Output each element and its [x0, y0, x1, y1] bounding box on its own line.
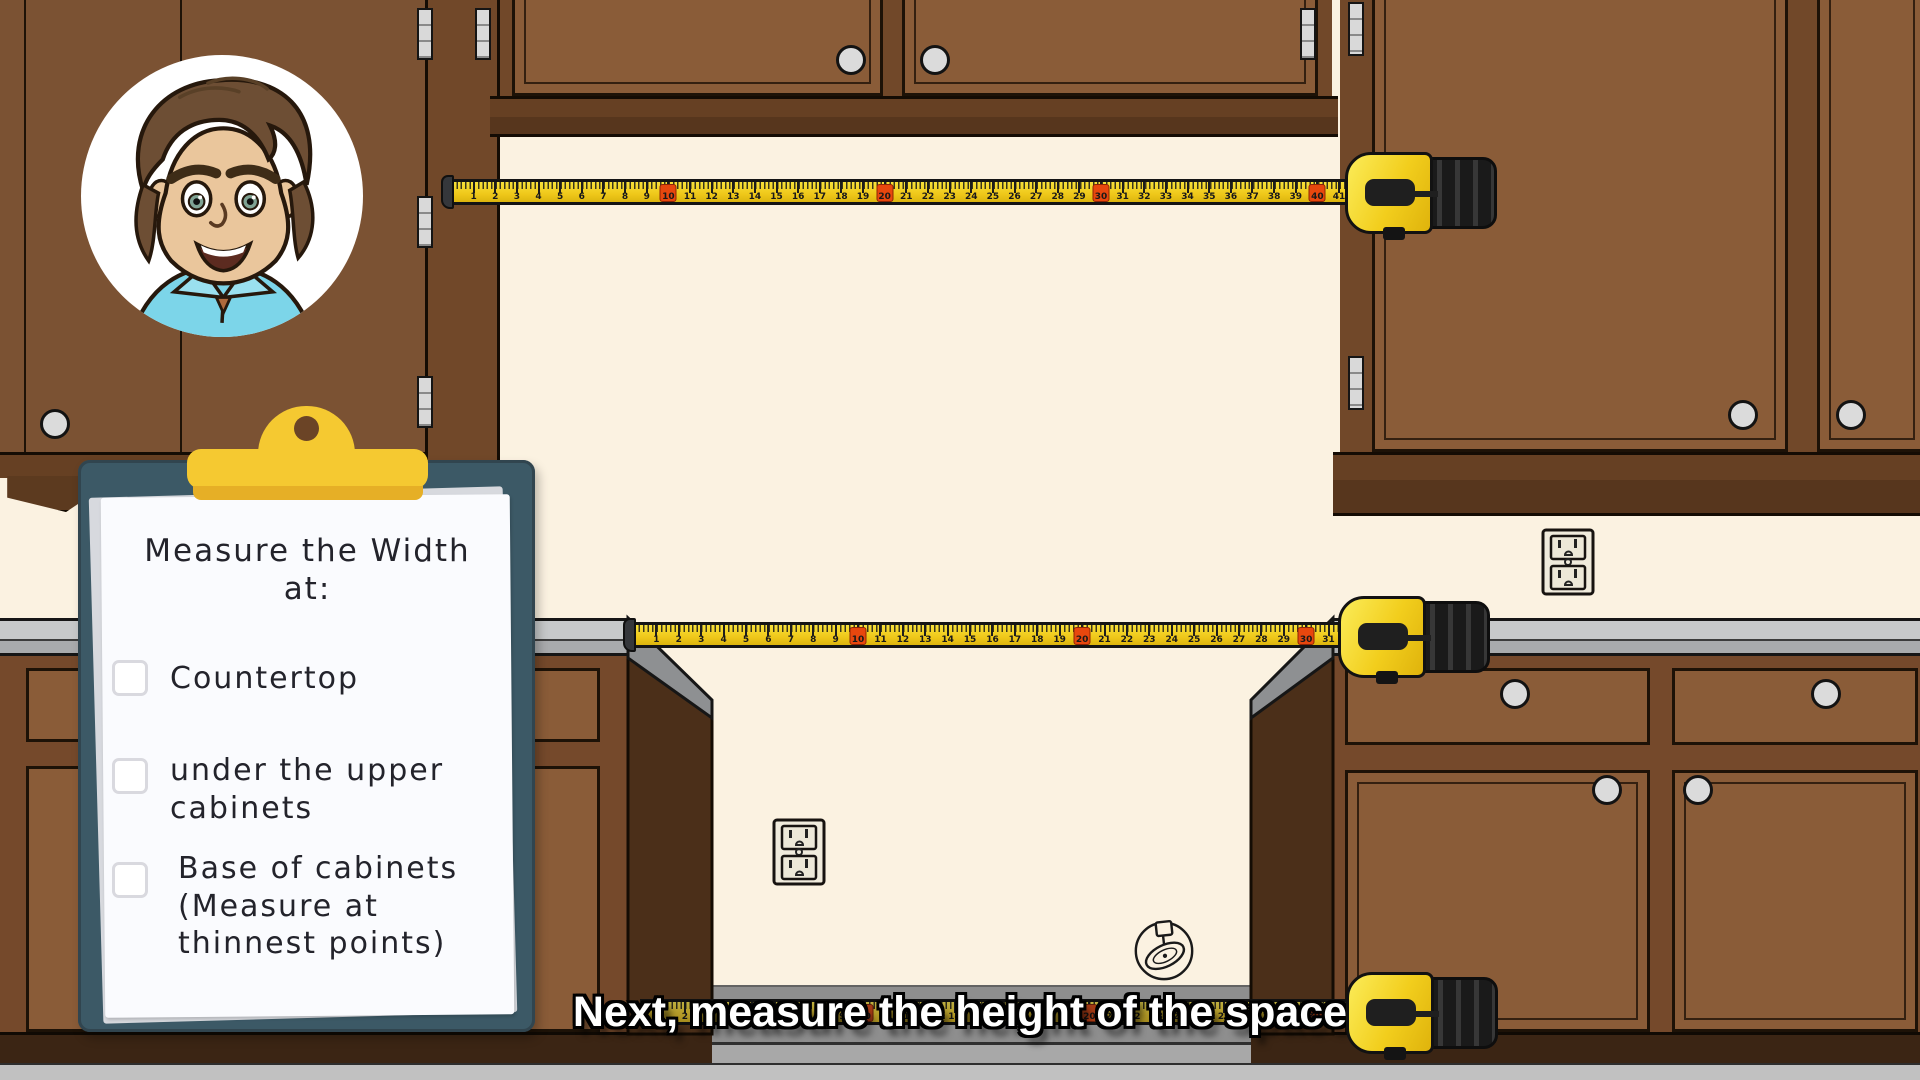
tape-hook	[623, 618, 636, 652]
tape-number: 7	[788, 635, 794, 645]
tape-number: 11	[684, 192, 697, 202]
tape-number: 4	[535, 192, 541, 202]
kitchen-scene: 1234567891011121314151617181920212223242…	[0, 0, 1920, 1080]
tape-number: 36	[1225, 192, 1238, 202]
tape-number: 31	[1116, 192, 1129, 202]
tape-number: 13	[727, 192, 740, 202]
checklist-title: Measure the Width at:	[103, 532, 512, 608]
tape-body-pin	[1405, 635, 1431, 641]
tape-number: 23	[943, 192, 956, 202]
tape-number: 26	[1210, 635, 1223, 645]
tape-body-tab	[1384, 1047, 1406, 1060]
tape-body-tab	[1376, 671, 1398, 684]
tape-number: 18	[1031, 635, 1044, 645]
tape-body-clip	[1366, 999, 1416, 1026]
tape-number: 3	[514, 192, 520, 202]
tape-number: 12	[705, 192, 718, 202]
tape-number: 27	[1030, 192, 1043, 202]
tape-measure-body-countertop	[1338, 596, 1490, 678]
tape-number: 1	[653, 635, 659, 645]
tape-number: 38	[1268, 192, 1281, 202]
tape-number: 4	[720, 635, 726, 645]
clipboard-clip-shadow	[193, 486, 423, 500]
tape-number: 8	[810, 635, 816, 645]
tape-number: 30	[1300, 635, 1313, 645]
clipboard-clip	[187, 449, 428, 489]
tape-number: 14	[749, 192, 762, 202]
tape-number: 5	[743, 635, 749, 645]
tape-body-tab	[1383, 227, 1405, 240]
tape-number: 20	[878, 192, 891, 202]
tape-number: 20	[1076, 635, 1089, 645]
tape-number: 9	[833, 635, 839, 645]
tape-number: 24	[1165, 635, 1178, 645]
tape-number: 2	[676, 635, 682, 645]
tape-number: 14	[941, 635, 954, 645]
tape-number: 33	[1160, 192, 1173, 202]
tape-measure-blade-countertop: 1234567891011121314151617181920212223242…	[634, 622, 1342, 648]
tape-number: 25	[1188, 635, 1201, 645]
tape-number: 5	[557, 192, 563, 202]
tape-number: 17	[814, 192, 827, 202]
tape-number: 15	[770, 192, 783, 202]
checklist-item-label: under the upper cabinets	[170, 752, 444, 827]
checkbox-countertop[interactable]	[112, 660, 148, 696]
tape-number: 13	[919, 635, 932, 645]
checklist-item-label: Countertop	[170, 660, 359, 698]
tape-number: 7	[600, 192, 606, 202]
tape-number: 17	[1009, 635, 1022, 645]
tape-body-clip	[1358, 623, 1408, 650]
tape-body-pin	[1413, 1011, 1439, 1017]
checkbox-under-upper-cabinets[interactable]	[112, 758, 148, 794]
tape-number: 3	[698, 635, 704, 645]
checklist-item-label: Base of cabinets (Measure at thinnest po…	[178, 850, 458, 963]
tape-number: 30	[1095, 192, 1108, 202]
tape-number: 22	[1121, 635, 1134, 645]
tape-number: 19	[1053, 635, 1066, 645]
tape-measure-body-bottom	[1346, 972, 1498, 1054]
tape-number: 22	[922, 192, 935, 202]
tape-number: 26	[1008, 192, 1021, 202]
tape-number: 16	[986, 635, 999, 645]
tape-number: 21	[900, 192, 913, 202]
tape-number: 10	[662, 192, 675, 202]
tape-number: 21	[1098, 635, 1111, 645]
tape-number: 29	[1073, 192, 1086, 202]
tape-number: 23	[1143, 635, 1156, 645]
tape-measure-doodle-icon	[1130, 915, 1198, 983]
tape-number: 6	[579, 192, 585, 202]
tape-number: 24	[965, 192, 978, 202]
tape-number: 16	[792, 192, 805, 202]
tape-hook	[441, 175, 454, 209]
tape-number: 2	[492, 192, 498, 202]
tape-number: 34	[1181, 192, 1194, 202]
clipboard-clip-hole	[294, 416, 319, 441]
tape-number: 37	[1246, 192, 1259, 202]
tape-number: 31	[1322, 635, 1335, 645]
tape-measure-blade-top: 1234567891011121314151617181920212223242…	[452, 179, 1352, 205]
tape-number: 40	[1311, 192, 1324, 202]
subtitle-caption: Next, measure the height of the space	[573, 988, 1347, 1037]
tape-number: 6	[765, 635, 771, 645]
tape-number: 11	[874, 635, 887, 645]
tape-body-pin	[1412, 191, 1438, 197]
tape-number: 25	[987, 192, 1000, 202]
tape-number: 28	[1052, 192, 1065, 202]
tape-body-clip	[1365, 179, 1415, 206]
tape-number: 27	[1233, 635, 1246, 645]
tape-number: 9	[644, 192, 650, 202]
checkbox-base-of-cabinets[interactable]	[112, 862, 148, 898]
tape-number: 39	[1289, 192, 1302, 202]
tape-number: 19	[857, 192, 870, 202]
tape-number: 28	[1255, 635, 1268, 645]
tape-number: 1	[470, 192, 476, 202]
tape-number: 32	[1138, 192, 1151, 202]
tape-number: 8	[622, 192, 628, 202]
tape-measure-body-top	[1345, 152, 1497, 234]
tape-number: 18	[835, 192, 848, 202]
tape-number: 10	[852, 635, 865, 645]
tape-number: 15	[964, 635, 977, 645]
tape-number: 41	[1333, 192, 1346, 202]
tape-number: 29	[1277, 635, 1290, 645]
tape-number: 12	[897, 635, 910, 645]
tape-number: 35	[1203, 192, 1216, 202]
